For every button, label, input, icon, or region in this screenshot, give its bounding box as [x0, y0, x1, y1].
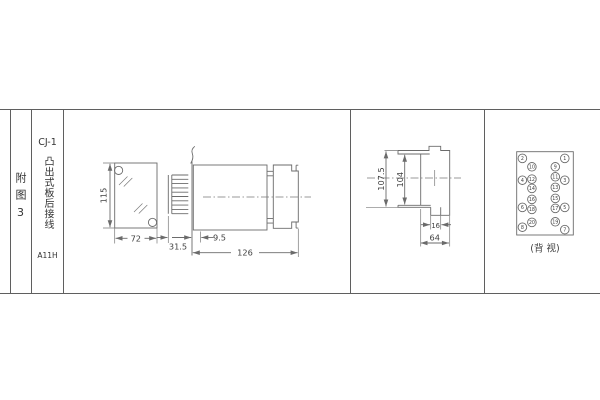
- terminal-pin-5: 5: [561, 203, 570, 212]
- svg-text:10: 10: [529, 165, 535, 171]
- svg-text:12: 12: [529, 177, 535, 183]
- terminal-pin-12: 12: [528, 175, 537, 184]
- svg-text:6: 6: [521, 205, 524, 211]
- terminal-comb: [168, 175, 188, 214]
- terminal-pin-18: 18: [528, 205, 537, 214]
- svg-text:11: 11: [552, 175, 558, 181]
- dim-315-label: 31.5: [169, 242, 187, 252]
- terminal-pin-13: 13: [551, 183, 560, 192]
- svg-text:14: 14: [529, 186, 535, 192]
- terminal-pin-17: 17: [551, 204, 560, 213]
- svg-text:19: 19: [552, 220, 558, 226]
- terminal-back-view: 2 4 6 8 10 12 14 16 18 20 9 11 13 15 17 …: [517, 152, 574, 255]
- terminal-pin-11: 11: [551, 173, 560, 182]
- terminal-pin-3: 3: [561, 176, 570, 185]
- dim-64-label: 64: [429, 232, 439, 242]
- terminal-pin-16: 16: [528, 195, 537, 204]
- terminal-pin-20: 20: [528, 218, 537, 227]
- svg-text:8: 8: [521, 225, 524, 231]
- terminal-pin-10: 10: [528, 163, 537, 172]
- front-view: 115 72: [99, 163, 158, 244]
- mounting-hole-top: [115, 166, 123, 174]
- terminal-pin-15: 15: [551, 194, 560, 203]
- dim-104-label: 104: [395, 172, 405, 188]
- svg-text:17: 17: [552, 206, 558, 212]
- side-view: 31.5 9.5 126: [157, 146, 312, 257]
- terminal-pin-7: 7: [561, 225, 570, 234]
- rear-outline: [398, 146, 450, 215]
- front-extension-lines: [103, 163, 157, 244]
- dim-72-label: 72: [131, 233, 141, 243]
- rear-outline-view: 107.5 104 16 64: [366, 146, 461, 246]
- terminal-pin-9: 9: [551, 163, 560, 172]
- sheet-frame-lines: [0, 110, 600, 294]
- dim-126-label: 126: [237, 248, 253, 258]
- svg-text:4: 4: [521, 178, 524, 184]
- svg-text:15: 15: [552, 196, 558, 202]
- back-view-caption: (背 视): [530, 243, 559, 255]
- terminal-pin-19: 19: [551, 218, 560, 227]
- terminal-box-outline: [517, 152, 574, 235]
- dim-16-label: 16: [431, 222, 440, 230]
- svg-text:18: 18: [529, 207, 535, 213]
- terminal-pin-6: 6: [518, 203, 527, 212]
- drawing-sheet: 附图3 CJ-1 凸出式板后接线 A11H 115 72: [0, 0, 600, 400]
- svg-text:1: 1: [563, 156, 566, 162]
- svg-text:3: 3: [563, 178, 566, 184]
- dim-115-label: 115: [99, 188, 109, 204]
- dim-1075-label: 107.5: [376, 167, 386, 190]
- relay-drawing-canvas: 115 72 31.5: [0, 0, 600, 400]
- mounting-hole-bottom: [148, 218, 156, 226]
- svg-text:2: 2: [521, 156, 524, 162]
- side-extension-lines: [168, 216, 298, 257]
- terminal-pin-2: 2: [518, 154, 527, 163]
- svg-text:9: 9: [554, 165, 557, 171]
- svg-text:13: 13: [552, 185, 558, 191]
- terminal-pin-1: 1: [561, 154, 570, 163]
- surface-hatch-marks: [119, 177, 147, 214]
- svg-text:5: 5: [563, 205, 566, 211]
- svg-text:7: 7: [563, 227, 566, 233]
- relay-body-outline: [193, 165, 267, 230]
- terminal-pin-8: 8: [518, 223, 527, 232]
- dim-95-label: 9.5: [213, 233, 226, 243]
- panel-break-mark: [191, 146, 195, 163]
- terminal-pin-4: 4: [518, 176, 527, 185]
- svg-text:16: 16: [529, 197, 535, 203]
- svg-text:20: 20: [529, 220, 535, 226]
- terminal-pin-14: 14: [528, 184, 537, 193]
